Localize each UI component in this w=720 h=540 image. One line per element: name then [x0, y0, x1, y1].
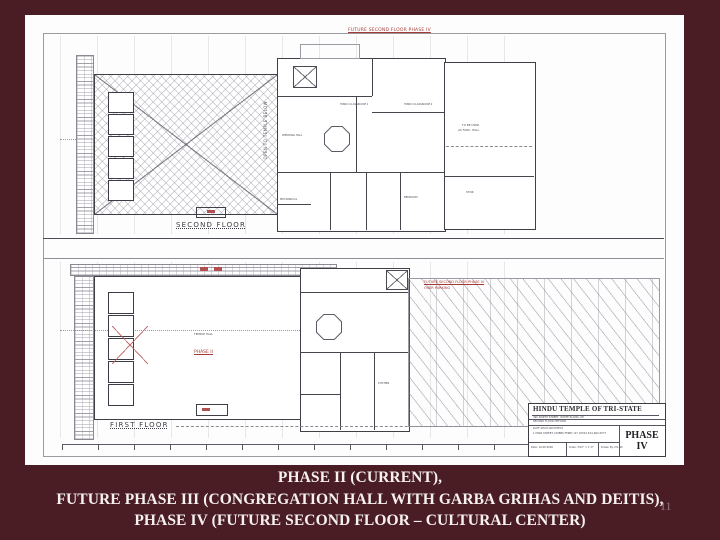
hall-centerline [446, 146, 532, 147]
caption-line-1: PHASE II (CURRENT), [0, 467, 720, 489]
wall-line [444, 176, 534, 177]
first-floor-title: FIRST FLOOR [110, 421, 169, 429]
room-label: KITCHEN [378, 382, 389, 385]
skylight-octagon [324, 126, 350, 152]
hall-label: TEMPLE HALL [194, 332, 213, 336]
garba-griha-shrine [108, 180, 134, 201]
room-label: TO BE USED [462, 123, 479, 127]
architect-name: DATT SHAH ARCHITECT [533, 427, 563, 430]
wall-line [300, 292, 408, 293]
brick-wall-left [74, 276, 94, 440]
parking-annotation: OVER PARKING [424, 286, 450, 290]
garba-griha-shrine [108, 136, 134, 157]
entry-marker [207, 210, 215, 213]
wall-line [330, 172, 331, 230]
wall-line [366, 172, 367, 230]
wall-line [277, 172, 444, 173]
date-cell: Date: 10.08.2006 [531, 446, 553, 449]
revision-cross [112, 326, 148, 364]
architect-address: 1 MAIN STREET, DOBBS FERRY, NY 10522 914… [533, 432, 606, 435]
room-label: WEDDING HALL [282, 134, 302, 137]
room-label: MECHANICAL [280, 198, 297, 201]
wall-line [374, 352, 375, 430]
phase-word: PHASE [625, 430, 658, 441]
brick-wall-left [76, 55, 94, 234]
row-divider [529, 442, 619, 443]
phase-2-annotation: PHASE II [194, 350, 213, 355]
planter-marker [200, 267, 208, 271]
stairwell [293, 66, 317, 88]
parking-annotation: FUTURE SECOND FLOOR PHASE IV [424, 280, 484, 284]
plan-separator-line [43, 258, 664, 259]
entry-marker [202, 408, 210, 411]
page-number: 11 [660, 499, 672, 514]
future-second-floor-annotation: FUTURE SECOND FLOOR PHASE IV [348, 28, 431, 33]
wall-line [372, 112, 444, 113]
wall-line [300, 394, 340, 395]
phase-number: IV [636, 441, 647, 452]
plan-separator-line [43, 238, 664, 239]
garba-griha-shrine [108, 384, 134, 406]
room-label: BEDROOM [404, 196, 418, 199]
title-block: HINDU TEMPLE OF TRI-STATE 390 NORTH STRE… [528, 403, 666, 457]
garba-griha-shrine [108, 114, 134, 135]
sheet-title: SECOND FLOOR OPTIONS [533, 420, 566, 423]
wall-line [340, 352, 341, 430]
garba-griha-shrine [108, 158, 134, 179]
wall-line [372, 58, 373, 96]
garba-griha-shrine [108, 92, 134, 113]
slide-caption: PHASE II (CURRENT), FUTURE PHASE III (CO… [0, 467, 720, 532]
project-name: HINDU TEMPLE OF TRI-STATE [533, 405, 642, 413]
roof-outline [300, 44, 360, 59]
second-floor-title: SECOND FLOOR [176, 221, 246, 229]
wall-line [400, 172, 401, 230]
room-label: HINDU CLASSROOM 1 [340, 103, 368, 106]
planter-marker [214, 267, 222, 271]
label-leader-line [176, 426, 532, 427]
scale-cell: Scale: 3/32" = 1'-0" [569, 446, 594, 449]
open-to-temple-label: OPEN TO TEMPLE BELOW [263, 101, 268, 160]
caption-line-3: PHASE IV (FUTURE SECOND FLOOR – CULTURAL… [0, 510, 720, 532]
wall-line [356, 96, 357, 172]
cell-divider [598, 442, 599, 456]
room-label: HINDU CLASSROOM 2 [404, 103, 432, 106]
cell-divider [566, 442, 567, 456]
dimension-ruler [62, 444, 532, 450]
slide: FUTURE SECOND FLOOR PHASE IV OPEN TO TEM… [0, 0, 720, 540]
phase-box: PHASE IV [619, 425, 665, 456]
caption-line-2: FUTURE PHASE III (CONGREGATION HALL WITH… [0, 489, 720, 511]
room-label: AS FUNC. HALL [458, 128, 479, 132]
garba-griha-shrine [108, 292, 134, 314]
stairwell [386, 270, 408, 290]
wall-line [277, 204, 311, 205]
garba-griha-shrine [108, 361, 134, 383]
wall-line [300, 352, 408, 353]
room-label: STOR [466, 190, 474, 194]
wall-line [277, 96, 372, 97]
skylight-octagon [316, 314, 342, 340]
entry-vestibule [196, 404, 228, 416]
